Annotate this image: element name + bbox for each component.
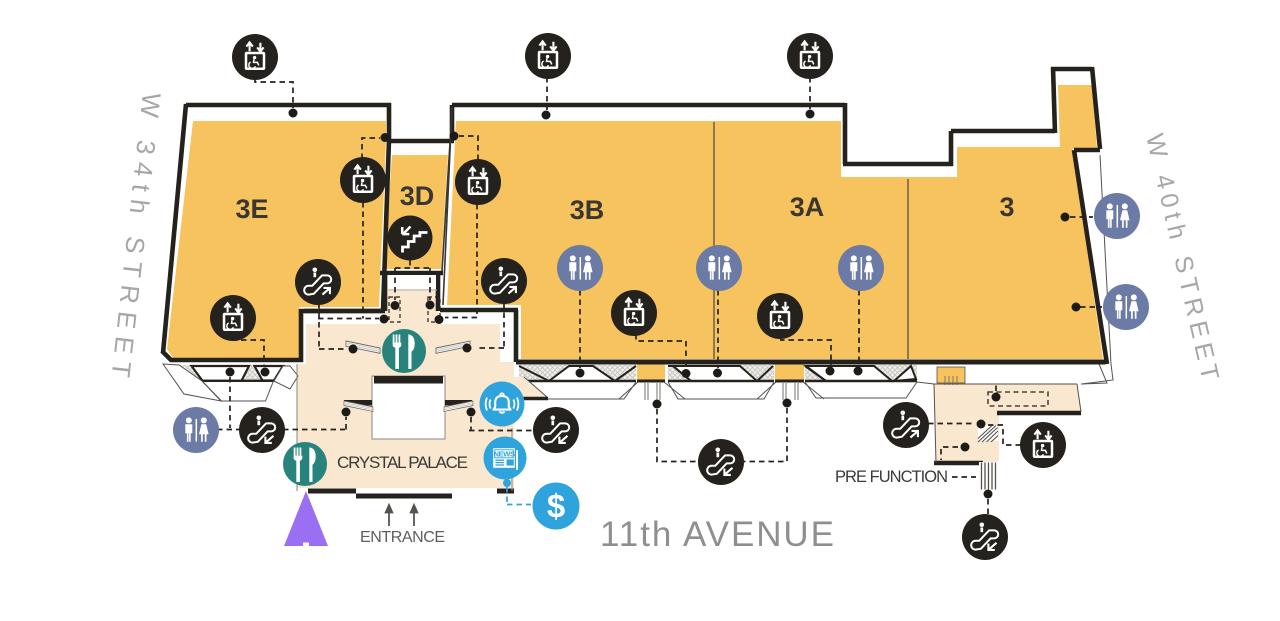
svg-text:3E: 3E (235, 194, 268, 224)
svg-text:PRE FUNCTION: PRE FUNCTION (835, 468, 948, 486)
svg-text:11th AVENUE: 11th AVENUE (600, 515, 834, 554)
svg-text:CRYSTAL PALACE: CRYSTAL PALACE (337, 453, 468, 472)
svg-text:ENTRANCE: ENTRANCE (360, 529, 445, 546)
svg-text:3B: 3B (570, 195, 605, 225)
svg-text:3: 3 (999, 192, 1014, 222)
svg-text:3D: 3D (400, 181, 435, 211)
svg-text:3A: 3A (790, 192, 825, 222)
